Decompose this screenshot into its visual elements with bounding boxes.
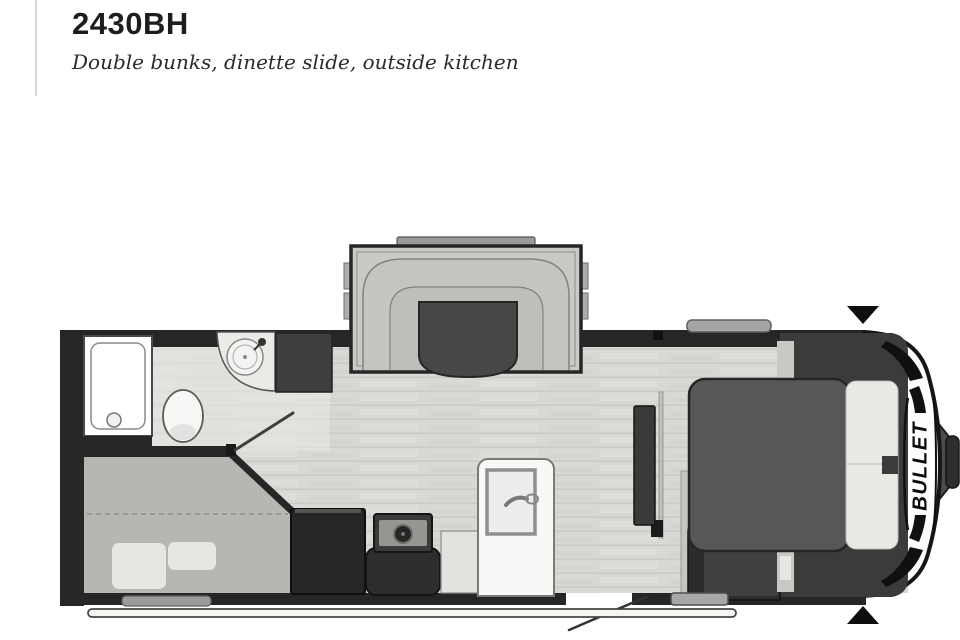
queen-bed-mattress xyxy=(689,379,850,551)
nightstand-bottom-inner xyxy=(780,556,791,580)
awning-rail xyxy=(88,609,736,617)
pillow-notch xyxy=(882,456,898,474)
brand-label: BULLET xyxy=(908,421,931,511)
rear-wall xyxy=(60,330,84,606)
dinette-slide xyxy=(344,237,588,377)
marker-triangle-top xyxy=(847,306,879,324)
counter xyxy=(441,531,479,593)
refrigerator xyxy=(291,509,365,594)
entry-step xyxy=(671,593,728,605)
wall-tick-top xyxy=(653,331,663,340)
floorplan-page: 2430BH Double bunks, dinette slide, outs… xyxy=(0,0,960,640)
tv xyxy=(634,406,655,525)
hitch-coupler xyxy=(946,436,959,488)
refrigerator-top-edge xyxy=(295,509,361,513)
nightstand-top xyxy=(777,341,794,381)
shower-drain xyxy=(107,413,121,427)
bedroom-window-tab xyxy=(687,320,771,332)
tv-partition xyxy=(659,392,663,538)
dinette-table xyxy=(419,302,517,377)
range-base xyxy=(366,548,440,595)
toilet-seat xyxy=(170,424,196,440)
bunk-pillow-2 xyxy=(168,542,216,570)
marker-triangle-bottom xyxy=(847,606,879,624)
bunk-pillow-1 xyxy=(112,543,166,589)
floorplan-diagram: BULLET xyxy=(0,0,960,640)
sink-drain xyxy=(243,355,247,359)
burner-center xyxy=(401,532,405,536)
bunk-window-tab xyxy=(122,596,211,606)
wardrobe xyxy=(276,333,332,392)
bathroom-wall xyxy=(84,446,232,454)
